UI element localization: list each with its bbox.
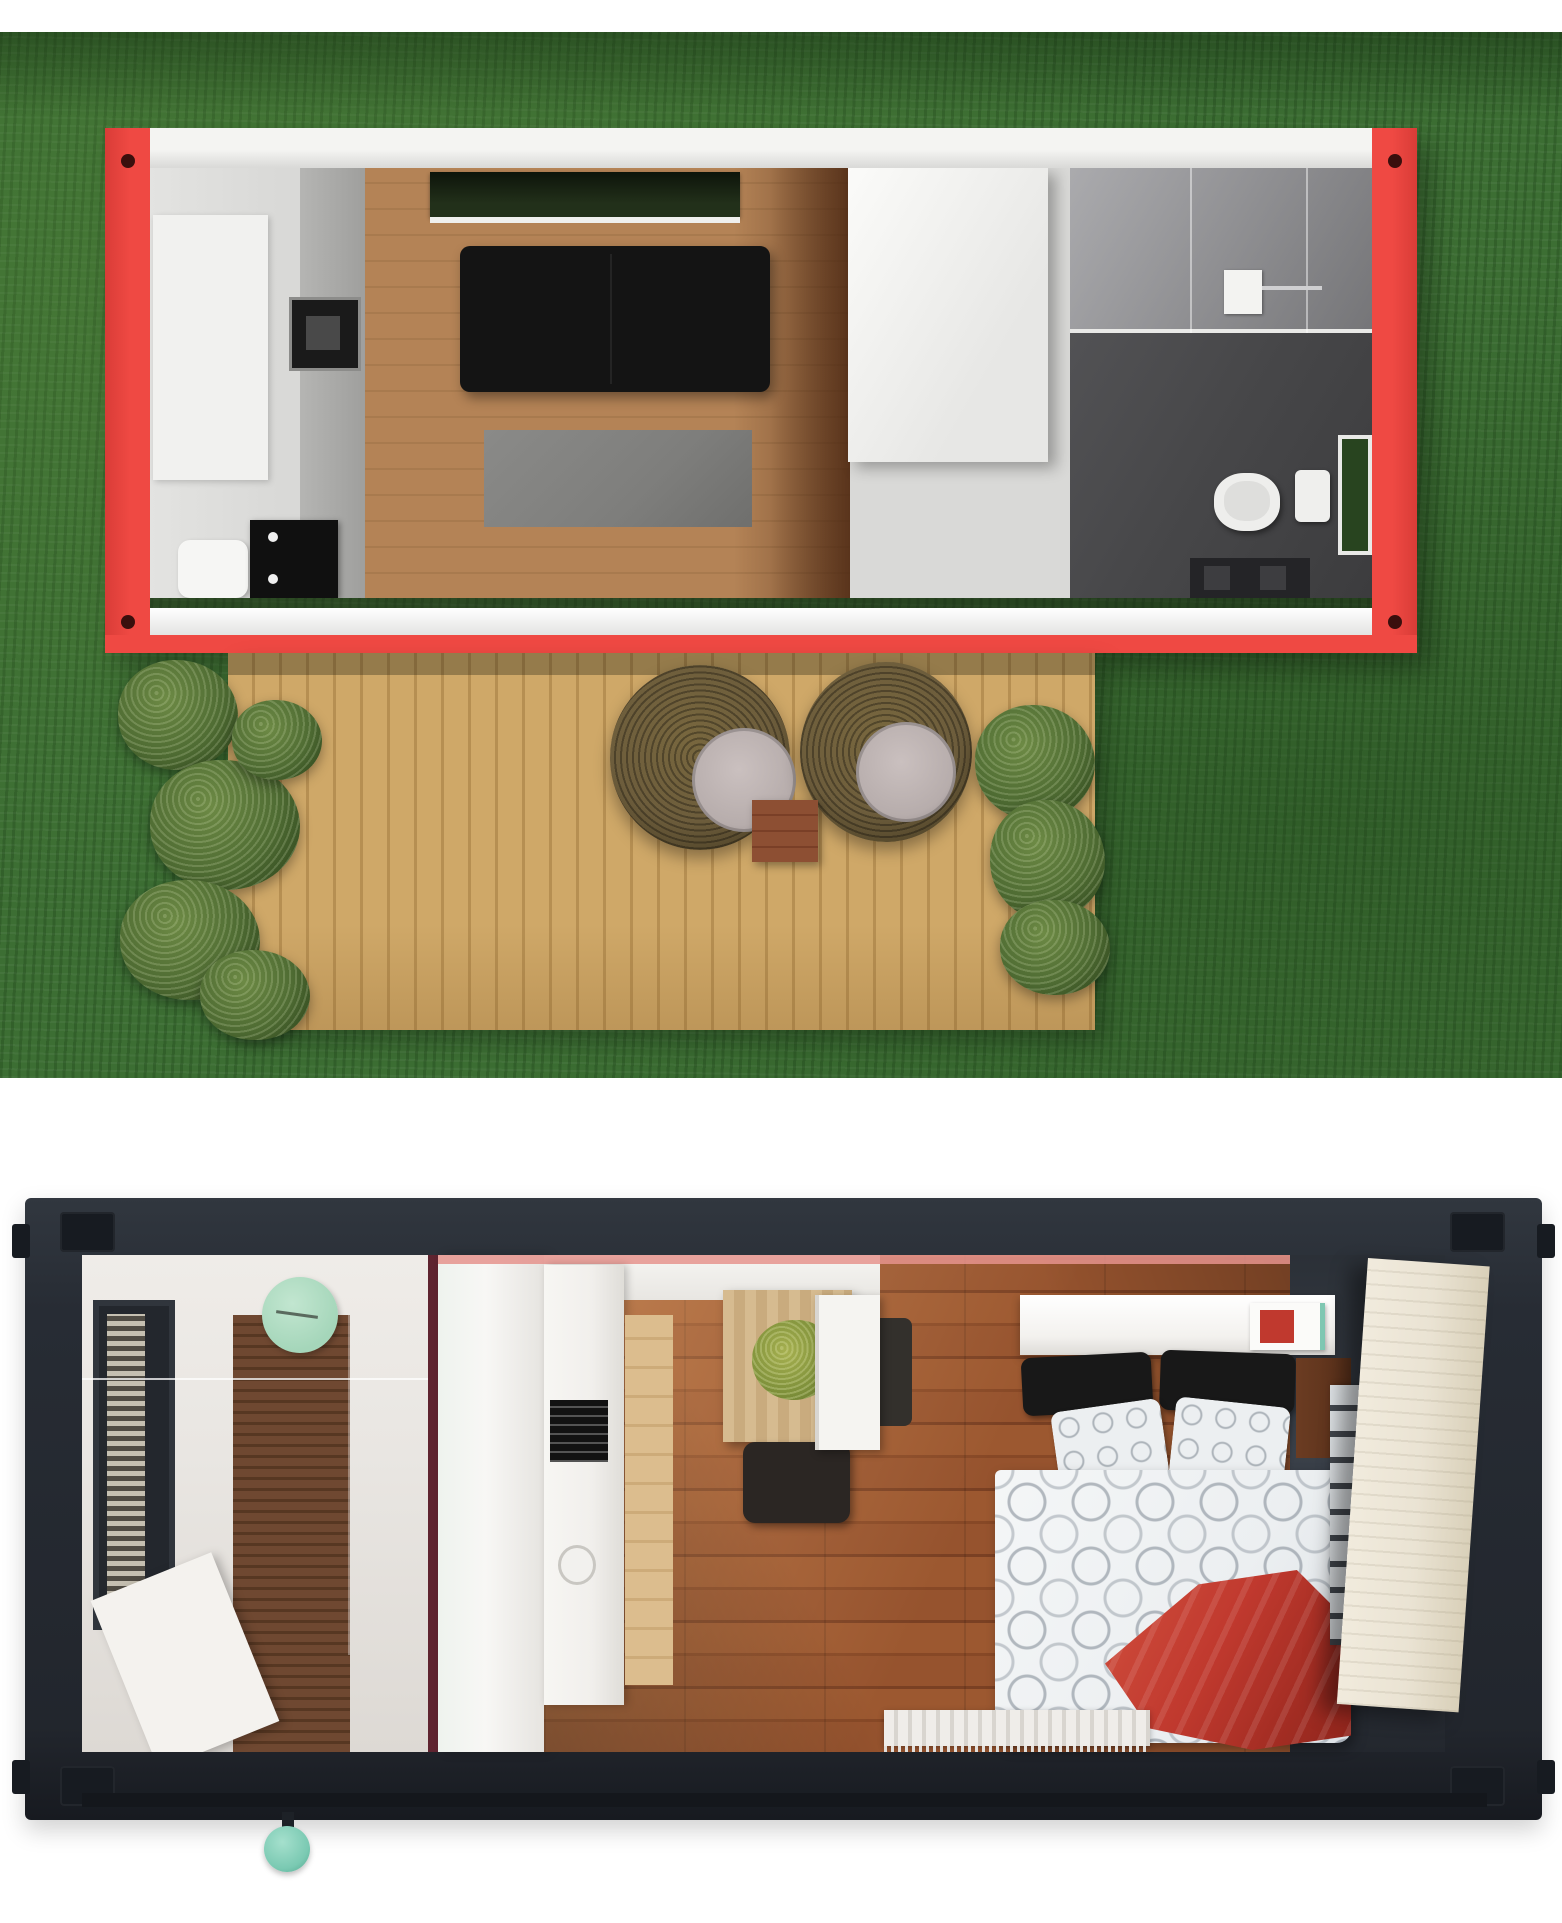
top-white-margin <box>0 0 1562 32</box>
frame-tab <box>1537 1224 1555 1258</box>
roof-window <box>430 172 740 217</box>
frame-tab <box>1537 1760 1555 1794</box>
white-divider-wall <box>438 1255 544 1752</box>
window-louvers <box>107 1314 145 1616</box>
top-end-wall <box>150 128 1372 168</box>
sofa-seam <box>610 254 612 384</box>
dark-container-interior <box>82 1255 1445 1752</box>
garden-window <box>1338 435 1372 555</box>
lawn-shadow-band <box>0 32 1562 118</box>
rug-fringe <box>884 1746 1150 1752</box>
red-frame-right <box>1372 128 1417 653</box>
deck-side-table <box>752 800 818 862</box>
corner-hole-top-left <box>121 154 135 168</box>
fridge-cabinet <box>815 1295 880 1450</box>
kitchen-zone <box>150 168 365 598</box>
door-jamb-line <box>428 1255 438 1752</box>
red-container-home <box>105 128 1417 653</box>
deck-shadow-band <box>228 653 1095 675</box>
shower-screen-edge-vertical <box>348 1315 350 1655</box>
red-wall-unit <box>1250 1303 1325 1350</box>
glass-joint <box>1306 168 1308 333</box>
toilet-lid <box>1224 481 1270 521</box>
frame-tab <box>12 1224 30 1258</box>
corner-casting <box>60 1212 115 1252</box>
cooktop <box>550 1400 608 1462</box>
storage-partition <box>848 168 1048 462</box>
render-canvas <box>0 0 1562 1923</box>
kitchen-sink <box>558 1545 596 1585</box>
teal-valve-knob <box>264 1826 310 1872</box>
red-container-interior <box>150 168 1372 598</box>
striped-rug <box>884 1710 1150 1746</box>
roof-window-sill <box>430 217 740 223</box>
corner-hole-bottom-right <box>1388 615 1402 629</box>
red-wall-unit-panel <box>1260 1310 1294 1343</box>
shower-glass-enclosure <box>1070 168 1372 333</box>
red-frame-bottom <box>105 635 1417 653</box>
dining-chair <box>743 1442 850 1523</box>
white-seat <box>178 540 248 598</box>
planter-shrub-right <box>1000 900 1110 995</box>
built-in-appliance <box>292 300 358 368</box>
shower-arm <box>1262 286 1322 290</box>
glass-joint <box>1190 168 1192 333</box>
frame-tab <box>12 1760 30 1794</box>
planter-shrub-left <box>232 700 322 780</box>
corner-hole-top-right <box>1388 154 1402 168</box>
planter-shrub-left <box>200 950 310 1040</box>
timber-deck <box>228 653 1095 1030</box>
gray-rug <box>484 430 752 527</box>
kitchen-base-cabinet <box>625 1315 673 1685</box>
clock-hand <box>276 1310 318 1319</box>
corner-hole-bottom-left <box>121 615 135 629</box>
interior-shadow-line <box>150 598 1372 608</box>
dresser-knob <box>268 532 278 542</box>
dark-vanity <box>1190 558 1310 598</box>
kitchen-white-cabinet <box>153 215 268 480</box>
appliance-door <box>306 316 340 350</box>
bottom-end-wall <box>150 608 1372 635</box>
planter-shrub-left <box>118 660 238 770</box>
bathroom-sink <box>1295 470 1330 522</box>
bathroom-section <box>82 1255 430 1752</box>
red-frame-left <box>105 128 150 653</box>
living-room-floor <box>365 168 850 598</box>
corner-casting <box>1450 1212 1505 1252</box>
vanity-basin <box>1204 566 1230 590</box>
toilet <box>1214 473 1280 531</box>
kitchen-counter-column <box>544 1265 624 1705</box>
shower-head-unit <box>1224 270 1262 314</box>
dresser-knob <box>268 574 278 584</box>
frame-bottom-rail <box>82 1793 1487 1807</box>
vanity-basin <box>1260 566 1286 590</box>
mint-wall-clock <box>262 1277 338 1353</box>
dark-container-home <box>25 1198 1542 1820</box>
dark-wood-transition <box>770 168 850 598</box>
black-sofa <box>460 246 770 392</box>
black-dresser <box>250 520 338 598</box>
shower-screen-edge <box>82 1378 430 1380</box>
chair-cushion-right <box>856 722 956 822</box>
bathroom-zone <box>1070 168 1372 598</box>
